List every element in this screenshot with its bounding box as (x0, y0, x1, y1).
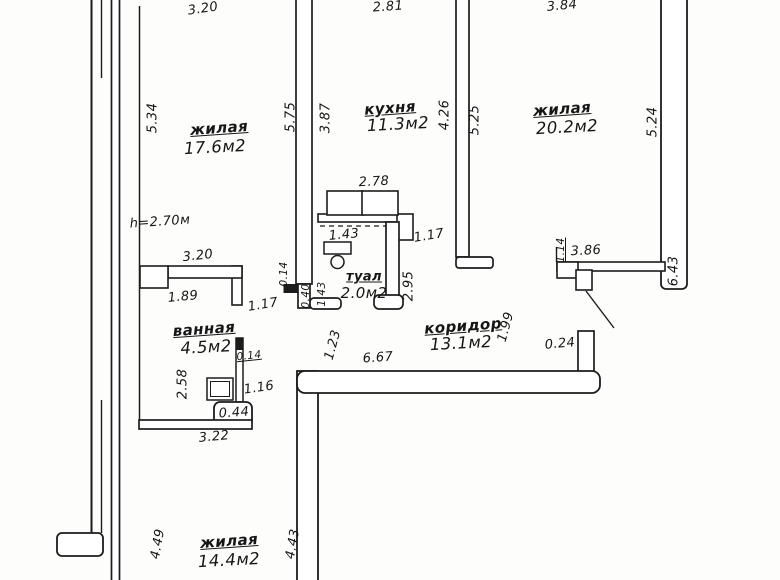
door-swing-line (586, 291, 614, 328)
wall-bath-bottom (139, 420, 252, 429)
dim-top-kitchen: 2.81 (372, 0, 404, 16)
wall-bath-top (168, 266, 242, 278)
wall-bath-right-tip (236, 338, 243, 350)
dim-right-living2: 5.24 (646, 107, 661, 138)
wall-toilet-right (386, 222, 399, 297)
wall-divider2-foot (456, 257, 493, 268)
wall-386-cap (557, 262, 578, 278)
dim-hall-top: 3.20 (182, 247, 214, 265)
toilet-bowl-icon (331, 256, 344, 269)
dim-bath-left: 2.58 (176, 369, 191, 400)
wall-pillar-024 (578, 331, 594, 372)
kitchen-counter-icon (327, 191, 363, 215)
toilet-tank-icon (324, 242, 351, 254)
dim-right-kitchen: 4.26 (438, 100, 453, 131)
room-corridor-area: 13.1м2 (429, 332, 492, 354)
dim-toilet-h: 2.95 (402, 271, 417, 302)
room-bath-area: 4.5м2 (180, 336, 232, 358)
dim-hall-189: 1.89 (167, 288, 199, 306)
wall-divider1 (296, 0, 312, 284)
dim-l2-offset: 1.14 (555, 238, 567, 263)
dim-bath-pier: 0.44 (218, 404, 250, 421)
dim-right-living1: 5.75 (284, 102, 299, 133)
room-toilet-name: туал (346, 270, 382, 285)
dim-corr-len: 6.67 (362, 349, 394, 366)
dim-counter: 2.78 (358, 174, 389, 191)
wall-386-tab (576, 270, 592, 290)
dim-l2-bottom: 3.86 (570, 243, 601, 260)
room-toilet-area: 2.0м2 (341, 284, 388, 302)
dim-pillar: 0.24 (544, 335, 576, 353)
wall-bath-pier (140, 266, 168, 288)
dim-stub: 0.14 (278, 262, 290, 287)
dim-bath-bottom: 3.22 (198, 428, 230, 446)
dim-toilet-w: 1.43 (316, 282, 328, 307)
dim-left-living1: 5.34 (146, 103, 161, 134)
room-living2-area: 20.2м2 (535, 116, 598, 138)
wall-corridor-vertical (297, 371, 318, 580)
dim-toilet-top: 1.43 (328, 226, 360, 244)
floor-plan-drawing (0, 0, 780, 580)
wall-left-main (112, 0, 120, 580)
wall-corridor-bar (297, 371, 600, 393)
room-living3-area: 14.4м2 (197, 549, 260, 571)
room-kitchen-area: 11.3м2 (366, 113, 429, 135)
dim-right-wall: 6.43 (667, 256, 682, 287)
wall-left-foot (57, 533, 103, 556)
kitchen-sink-icon (362, 191, 398, 215)
room-living1-area: 17.6м2 (183, 136, 246, 158)
wall-right-outer (661, 0, 687, 289)
dim-left-living2: 5.25 (468, 105, 483, 136)
floor-plan-page: жилая 17.6м2 кухня 11.3м2 жилая 20.2м2 т… (0, 0, 780, 580)
dim-toilet-wall: 0.40 (300, 284, 312, 309)
dim-left-kitchen: 3.87 (319, 103, 334, 134)
